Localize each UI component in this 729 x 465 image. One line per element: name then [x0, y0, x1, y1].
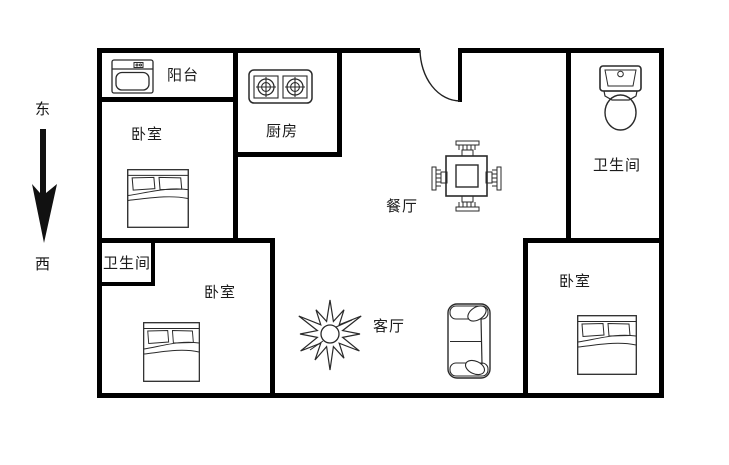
- room-label-kitchen: 厨房: [266, 124, 298, 139]
- room-label-bathroom-north: 卫生间: [593, 158, 641, 173]
- room-label-bedroom-southeast: 卧室: [559, 274, 591, 289]
- walls: [97, 48, 664, 398]
- bed-icon: [144, 323, 200, 382]
- dining-table-icon: [432, 141, 501, 211]
- floor-plan-drawing: [0, 0, 729, 465]
- bed-icon: [128, 170, 189, 228]
- room-label-bathroom-west: 卫生间: [103, 256, 151, 271]
- entry-door-leaf: [458, 48, 462, 102]
- entry-door-arc: [420, 50, 460, 101]
- floor-plan: 东 西 阳台 卧室 厨房 餐厅 卫生间 卫生间 卧室 客厅 卧室: [0, 0, 729, 465]
- bed-icon: [578, 316, 637, 375]
- room-label-bedroom-southwest: 卧室: [204, 285, 236, 300]
- plant-icon: [299, 300, 361, 370]
- compass-arrow-icon: [32, 129, 57, 243]
- room-label-living-room: 客厅: [373, 319, 405, 334]
- washbasin-icon: [112, 60, 153, 93]
- compass-west-label: 西: [35, 257, 50, 273]
- room-label-dining-room: 餐厅: [386, 199, 418, 214]
- sofa-icon: [448, 303, 490, 378]
- room-label-balcony: 阳台: [167, 68, 199, 83]
- gas-stove-icon: [249, 70, 312, 103]
- compass-east-label: 东: [35, 102, 50, 118]
- room-label-bedroom-northwest: 卧室: [131, 127, 163, 142]
- toilet-icon: [600, 66, 641, 130]
